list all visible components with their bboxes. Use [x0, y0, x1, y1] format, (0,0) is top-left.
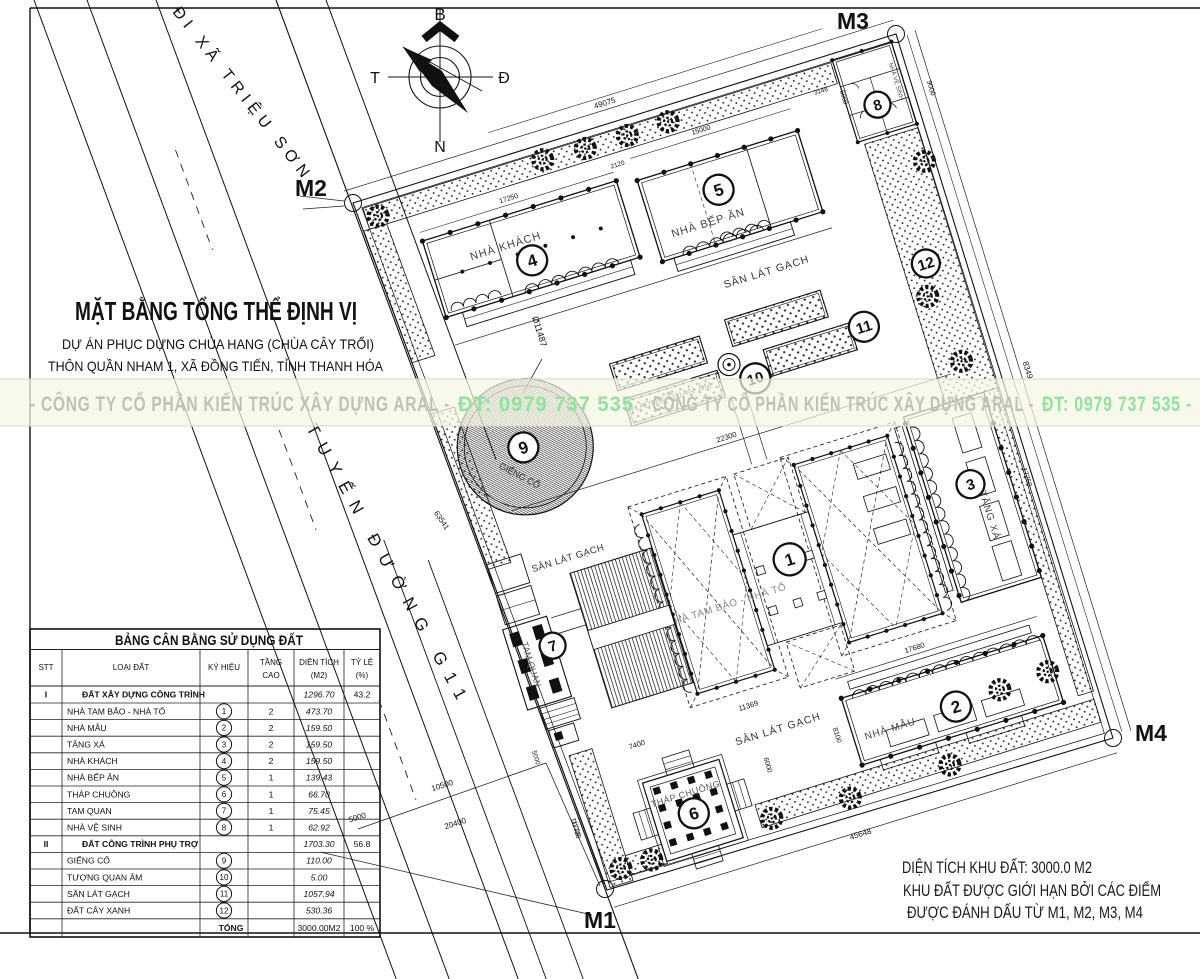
svg-text:NHÀ VỆ SINH: NHÀ VỆ SINH	[67, 823, 122, 833]
svg-text:2: 2	[222, 724, 227, 733]
svg-text:ĐẤT CÂY XANH: ĐẤT CÂY XANH	[67, 906, 130, 916]
svg-text:3000.00M2: 3000.00M2	[297, 923, 340, 933]
svg-text:2: 2	[269, 706, 274, 716]
svg-text:1: 1	[222, 707, 227, 716]
svg-text:10: 10	[220, 873, 229, 882]
svg-text:TỔNG: TỔNG	[219, 922, 244, 933]
svg-text:TƯỢNG QUAN ÂM: TƯỢNG QUAN ÂM	[67, 872, 142, 882]
svg-text:M2: M2	[295, 175, 327, 201]
svg-text:2: 2	[269, 723, 274, 733]
svg-text:MẶT BẰNG TỔNG THỂ ĐỊNH VỊ: MẶT BẰNG TỔNG THỂ ĐỊNH VỊ	[75, 296, 357, 326]
svg-text:12: 12	[220, 906, 229, 915]
svg-text:- CÔNG TY CỔ PHẦN KIẾN TRÚC XÂ: - CÔNG TY CỔ PHẦN KIẾN TRÚC XÂY DỰNG ARA…	[30, 392, 450, 416]
svg-text:DỰ ÁN PHỤC DỰNG CHÙA HANG (CHÙ: DỰ ÁN PHỤC DỰNG CHÙA HANG (CHÙA CÂY TRỔI…	[62, 335, 374, 352]
svg-text:ĐƯỢC ĐÁNH DẤU TỪ M1, M2, M3, M: ĐƯỢC ĐÁNH DẤU TỪ M1, M2, M3, M4	[907, 903, 1143, 922]
svg-text:1296.70: 1296.70	[303, 690, 334, 700]
svg-text:2: 2	[269, 740, 274, 750]
svg-text:1: 1	[269, 806, 274, 816]
svg-text:ĐT: 0979 737 535: ĐT: 0979 737 535	[458, 393, 634, 416]
svg-text:530.36: 530.36	[306, 906, 333, 916]
svg-text:1: 1	[269, 773, 274, 783]
svg-text:THÁP CHUÔNG: THÁP CHUÔNG	[67, 789, 131, 799]
svg-text:ĐẤT XÂY DỰNG CÔNG TRÌNH: ĐẤT XÂY DỰNG CÔNG TRÌNH	[82, 689, 205, 700]
svg-text:SÂN LÁT GẠCH: SÂN LÁT GẠCH	[67, 889, 130, 899]
svg-text:II: II	[44, 839, 49, 849]
svg-text:(M2): (M2)	[311, 671, 328, 680]
svg-text:DIỆN TÍCH KHU ĐẤT: 3000.0 M2: DIỆN TÍCH KHU ĐẤT: 3000.0 M2	[902, 858, 1092, 877]
svg-text:9: 9	[222, 857, 227, 866]
svg-text:5: 5	[222, 774, 227, 783]
svg-text:CAO: CAO	[262, 671, 279, 680]
svg-text:STT: STT	[38, 663, 53, 672]
svg-text:62.92: 62.92	[308, 823, 330, 833]
svg-text:110.00: 110.00	[306, 856, 332, 866]
svg-text:I: I	[45, 690, 47, 700]
svg-text:1057.94: 1057.94	[303, 889, 334, 899]
svg-text:NHÀ KHÁCH: NHÀ KHÁCH	[67, 756, 118, 766]
svg-text:KHU ĐẤT ĐƯỢC GIỚI HẠN BỞI CÁC: KHU ĐẤT ĐƯỢC GIỚI HẠN BỞI CÁC ĐIỂM	[903, 881, 1161, 900]
svg-text:(%): (%)	[356, 671, 369, 680]
svg-text:B: B	[434, 5, 445, 24]
svg-text:LOẠI ĐẤT: LOẠI ĐẤT	[113, 662, 150, 672]
svg-text:M3: M3	[837, 8, 869, 34]
svg-text:139.43: 139.43	[306, 773, 333, 783]
svg-text:M4: M4	[1135, 720, 1167, 746]
svg-text:BẢNG CÂN BẰNG SỬ DỤNG ĐẤT: BẢNG CÂN BẰNG SỬ DỤNG ĐẤT	[115, 631, 303, 648]
svg-text:T: T	[370, 70, 380, 87]
svg-text:ĐẤT CÔNG TRÌNH PHỤ TRỢ: ĐẤT CÔNG TRÌNH PHỤ TRỢ	[82, 838, 199, 849]
svg-text:3: 3	[222, 740, 227, 749]
svg-text:TỶ LỆ: TỶ LỆ	[351, 658, 373, 667]
svg-text:100 %: 100 %	[350, 923, 375, 933]
svg-text:TAM QUAN: TAM QUAN	[67, 806, 112, 816]
svg-text:ĐT: 0979 737 535 -: ĐT: 0979 737 535 -	[1042, 393, 1192, 416]
svg-text:GIẾNG CỔ: GIẾNG CỔ	[67, 855, 110, 866]
svg-text:NHÀ MẪU: NHÀ MẪU	[67, 722, 107, 733]
svg-text:11: 11	[220, 890, 229, 899]
svg-text:TĂNG XÁ: TĂNG XÁ	[67, 740, 105, 750]
svg-text:KÝ HIỆU: KÝ HIỆU	[208, 663, 240, 672]
svg-text:1703.30: 1703.30	[303, 839, 334, 849]
svg-text:6: 6	[222, 790, 227, 799]
svg-text:8: 8	[222, 823, 227, 832]
svg-text:N: N	[434, 139, 446, 156]
svg-text:1: 1	[269, 789, 274, 799]
svg-text:THÔN QUẦN NHAM 1, XÃ ĐỒNG TIẾN: THÔN QUẦN NHAM 1, XÃ ĐỒNG TIẾN, TỈNH THA…	[48, 357, 384, 374]
svg-text:7: 7	[222, 807, 227, 816]
svg-text:159.50: 159.50	[306, 756, 333, 766]
svg-text:159.50: 159.50	[306, 723, 333, 733]
svg-text:75.45: 75.45	[308, 806, 330, 816]
svg-text:Đ: Đ	[498, 70, 510, 87]
svg-text:1: 1	[269, 823, 274, 833]
svg-text:473.70: 473.70	[306, 706, 333, 716]
svg-text:NHÀ BẾP ĂN: NHÀ BẾP ĂN	[67, 773, 119, 783]
svg-text:NHÀ TAM BẢO - NHÀ TỔ: NHÀ TAM BẢO - NHÀ TỔ	[67, 705, 166, 716]
svg-text:4: 4	[222, 757, 227, 766]
svg-text:5.00: 5.00	[311, 872, 328, 882]
svg-text:56.8: 56.8	[354, 839, 371, 849]
svg-text:- CÔNG TY CỔ PHẦN KIẾN TRÚC XÂ: - CÔNG TY CỔ PHẦN KIẾN TRÚC XÂY DỰNG ARA…	[642, 392, 1034, 416]
svg-text:43.2: 43.2	[354, 690, 371, 700]
svg-text:2: 2	[269, 756, 274, 766]
svg-text:M1: M1	[584, 907, 616, 933]
